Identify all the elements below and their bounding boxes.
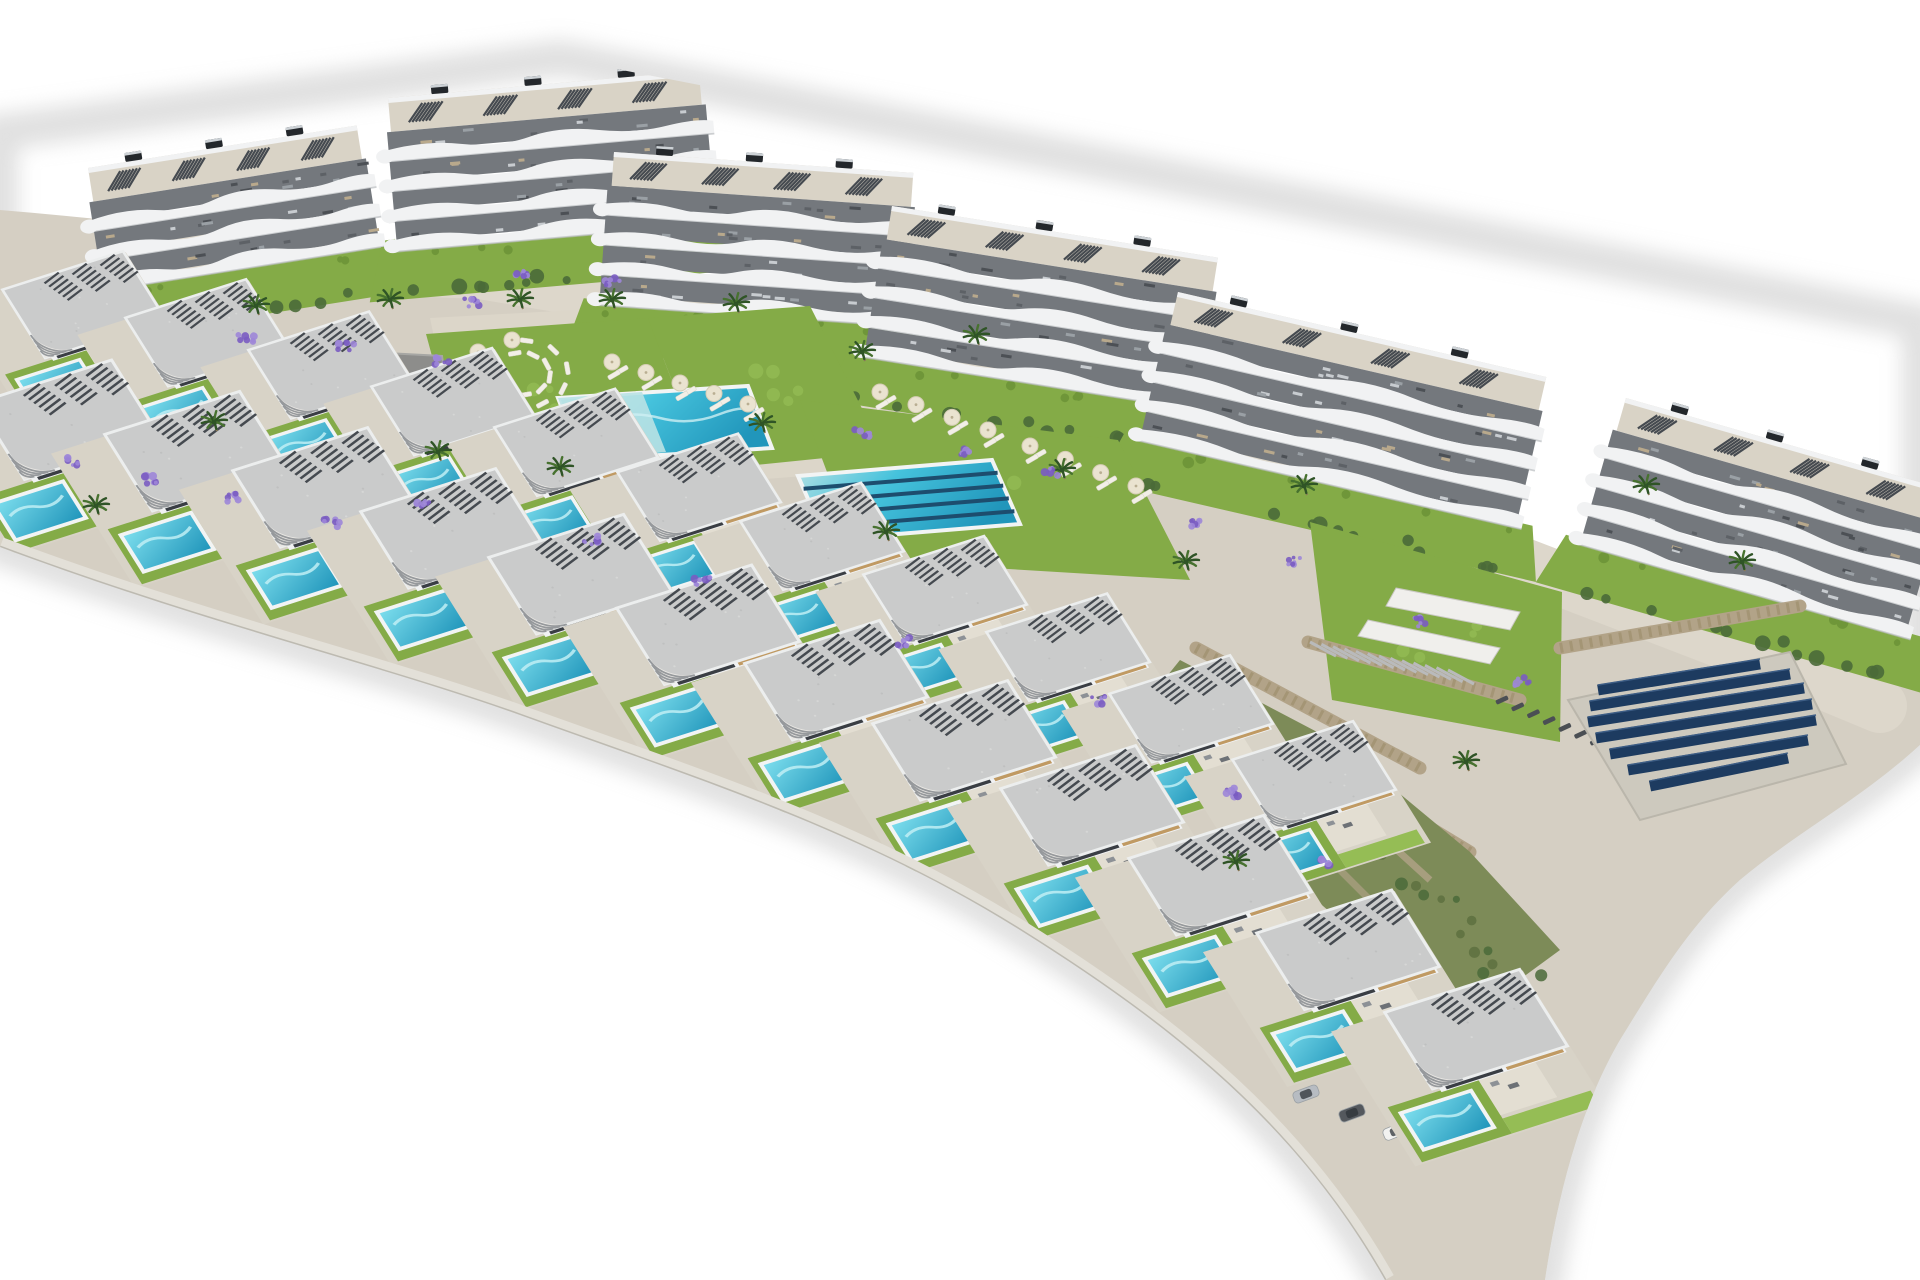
render-canvas bbox=[0, 0, 1920, 1280]
site-ground bbox=[0, 59, 1920, 1280]
aerial-site-plan-render bbox=[0, 0, 1920, 1280]
